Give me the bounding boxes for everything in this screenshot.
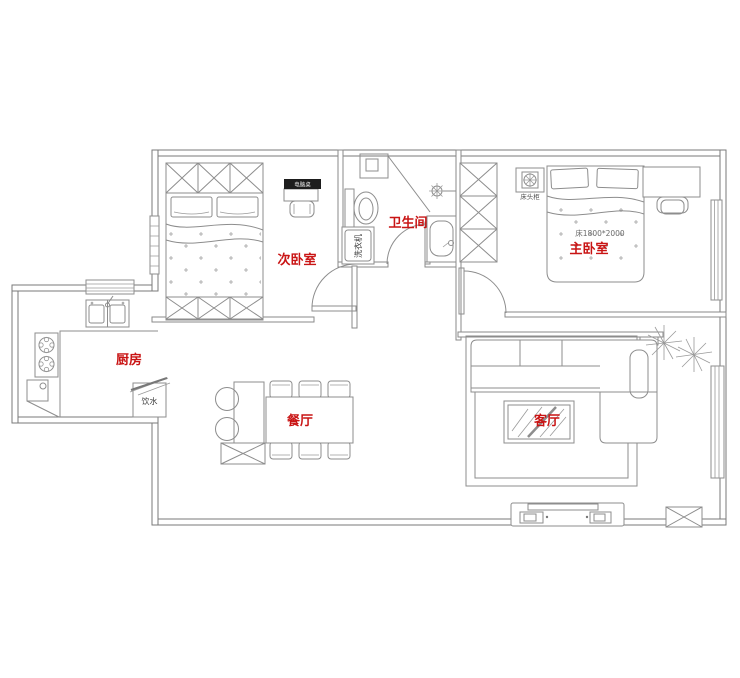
bed-size-note: 床1800*2000 xyxy=(575,228,625,238)
tv xyxy=(528,504,598,510)
floor-plan: 电脑桌 次卧室 洗衣机 卫生间 xyxy=(0,0,740,678)
wardrobe xyxy=(166,163,263,193)
desk xyxy=(643,167,700,214)
corner-cabinet-living xyxy=(666,507,702,527)
water-dispenser-label: 饮水 xyxy=(142,396,158,406)
bed: 床1800*2000 xyxy=(547,166,644,282)
bathroom: 洗衣机 卫生间 xyxy=(342,154,456,264)
bed xyxy=(166,193,263,320)
washing-machine-label: 洗衣机 xyxy=(353,234,363,258)
floor-plan-drawing: 电脑桌 次卧室 洗衣机 卫生间 xyxy=(0,0,740,678)
secondary-bedroom-label: 次卧室 xyxy=(277,252,316,268)
nightstand: 床头柜 xyxy=(516,168,544,201)
wardrobe xyxy=(460,163,497,262)
kitchen-label: 厨房 xyxy=(116,352,142,368)
master-bedroom-label: 主卧室 xyxy=(569,241,608,257)
door-secondary-bedroom xyxy=(312,264,356,311)
dining-cabinet xyxy=(221,443,265,464)
toilet xyxy=(345,189,378,227)
kitchen: 饮水 厨房 xyxy=(27,296,170,417)
water-dispenser: 饮水 xyxy=(130,378,170,417)
shower-icon xyxy=(429,183,456,199)
living-room-label: 客厅 xyxy=(534,413,560,429)
tv-stand xyxy=(511,503,624,526)
window-left xyxy=(150,216,159,274)
door-master-bedroom xyxy=(459,268,506,314)
kitchen-sink xyxy=(86,296,129,327)
desk-label: 电脑桌 xyxy=(284,179,321,189)
corner-cabinet xyxy=(27,380,59,417)
nightstand-label: 床头柜 xyxy=(520,192,540,201)
dining-room: 餐厅 xyxy=(216,381,354,464)
window-kitchen xyxy=(86,280,134,294)
secondary-bedroom: 电脑桌 次卧室 xyxy=(166,163,321,320)
desk xyxy=(284,189,318,217)
living-room: 客厅 xyxy=(466,325,712,527)
window-living xyxy=(711,366,724,478)
desk-tag-text: 电脑桌 xyxy=(294,181,311,189)
dining-room-label: 餐厅 xyxy=(286,413,313,429)
shelf-niche xyxy=(360,154,388,178)
bathroom-label: 卫生间 xyxy=(388,215,427,231)
window-master xyxy=(711,200,722,300)
washing-machine: 洗衣机 xyxy=(342,227,374,264)
stove xyxy=(35,333,58,377)
sideboard xyxy=(234,382,264,444)
bathroom-sink xyxy=(427,216,456,262)
master-bedroom: 床头柜 床1800*2000 主卧室 xyxy=(460,163,700,282)
